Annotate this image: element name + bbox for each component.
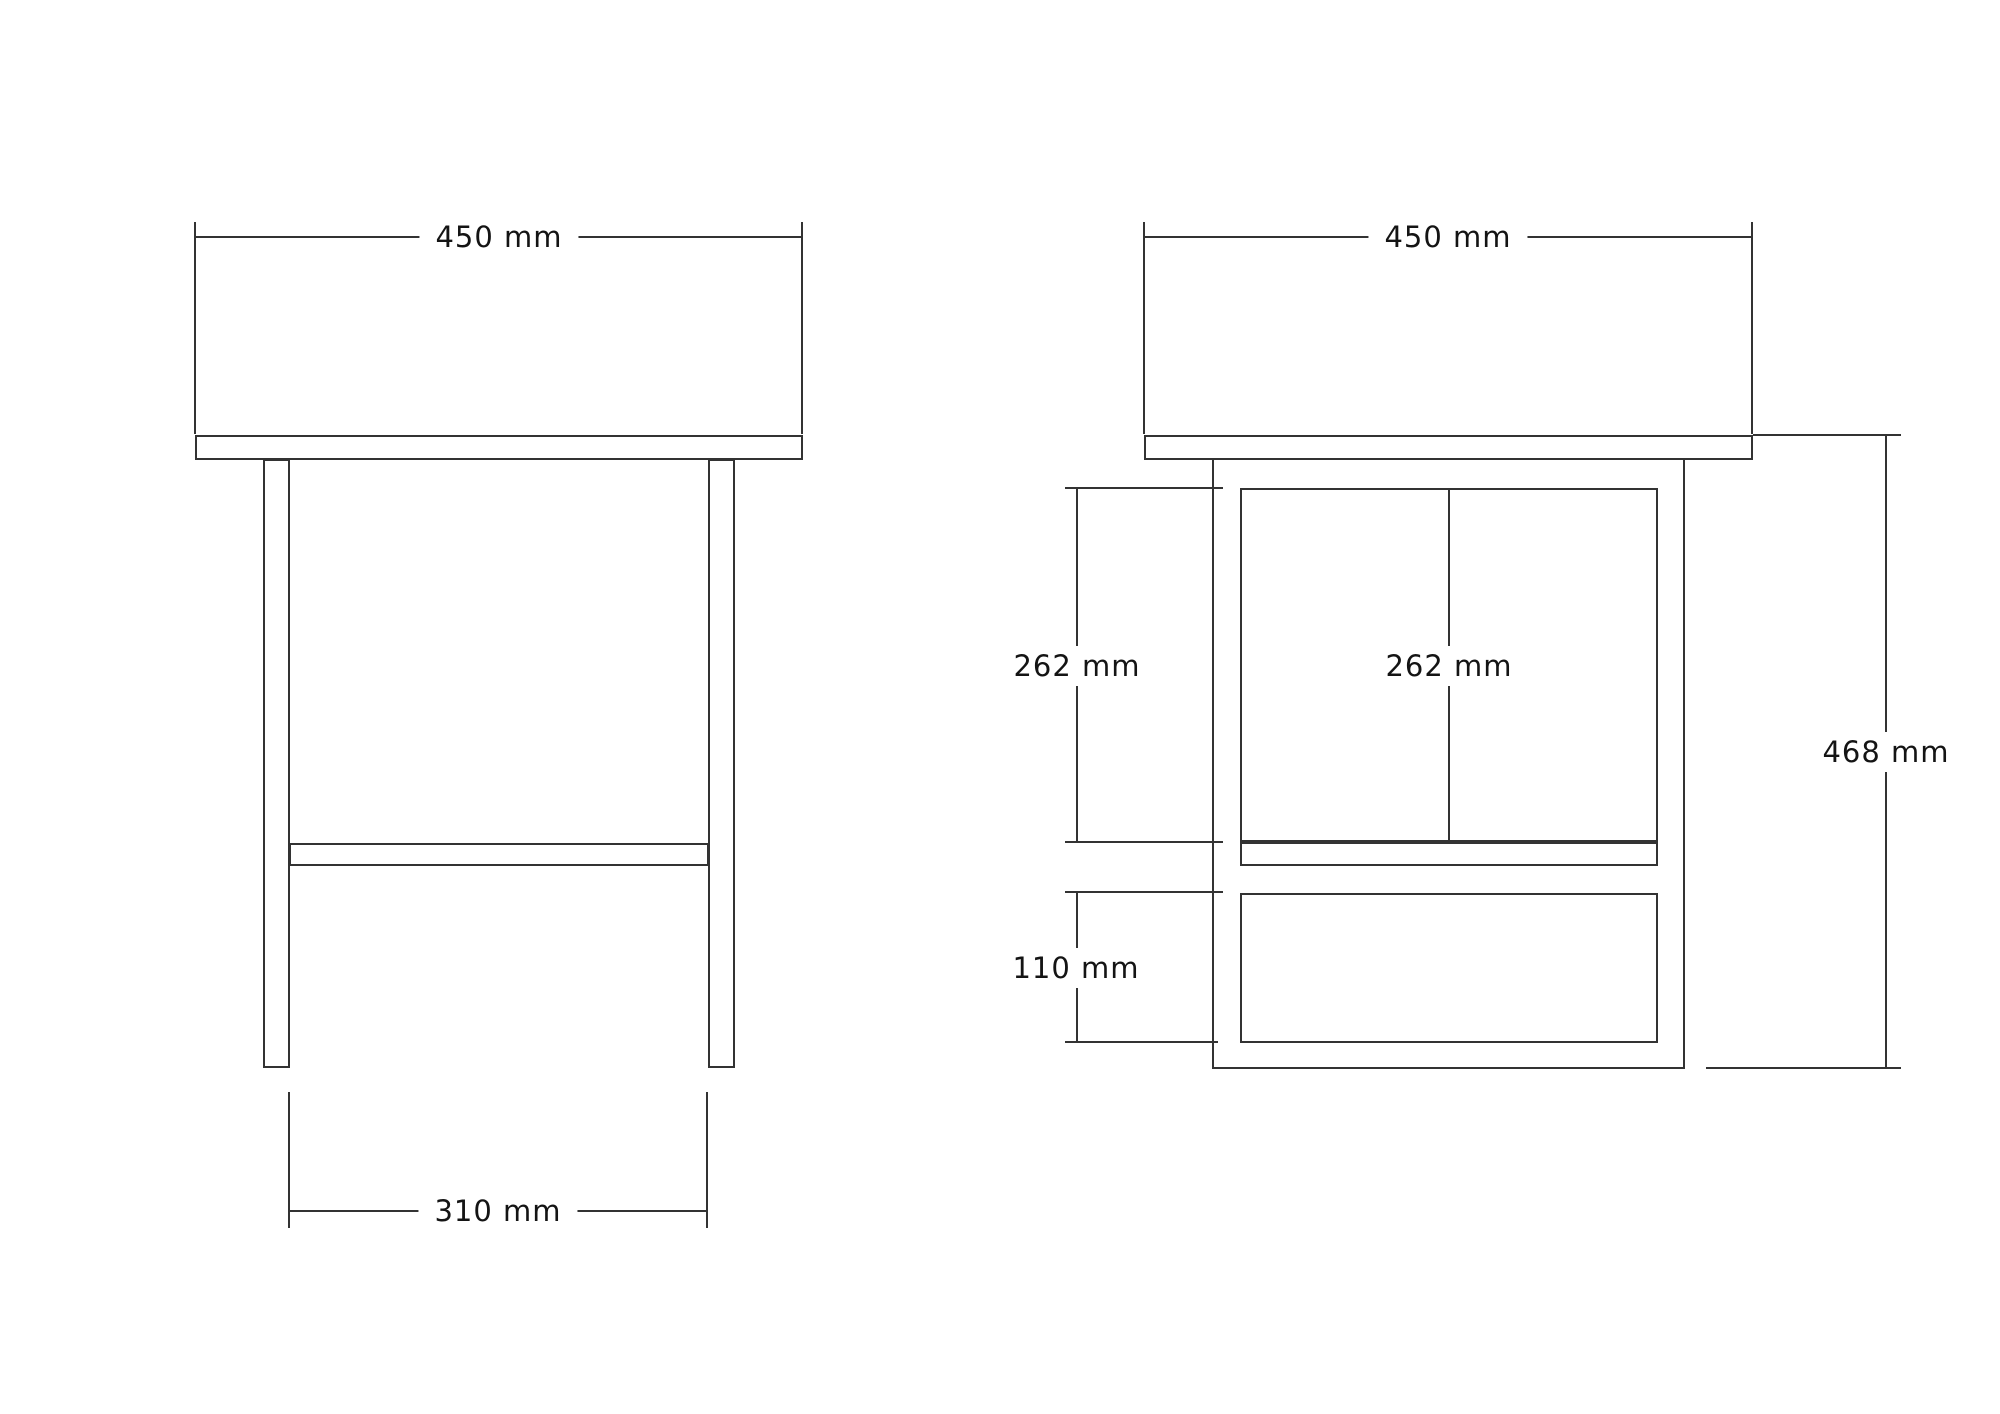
cabinet-left-wall [1212, 459, 1214, 1069]
side-span-label: 310 mm [418, 1191, 577, 1231]
side-span-extension-right [706, 1092, 708, 1228]
right-leg [708, 459, 735, 1068]
overall-height-extension-bottom [1706, 1067, 1901, 1069]
drawer-height-extension-bottom [1065, 1041, 1218, 1043]
side-width-extension-left [194, 222, 196, 434]
front-width-extension-left [1143, 222, 1145, 434]
side-width-label: 450 mm [419, 217, 578, 257]
tabletop-side [195, 435, 803, 460]
tabletop-front [1144, 435, 1753, 460]
stretcher [289, 843, 709, 866]
drawer-panel [1240, 893, 1658, 1043]
door-height-label: 262 mm [997, 646, 1156, 686]
door-center-label: 262 mm [1369, 646, 1528, 686]
cabinet-right-wall [1683, 459, 1685, 1069]
side-span-extension-left [288, 1092, 290, 1228]
front-width-extension-right [1751, 222, 1753, 434]
cabinet-bottom [1212, 1067, 1685, 1069]
door-height-extension-bottom [1065, 841, 1223, 843]
front-width-label: 450 mm [1368, 217, 1527, 257]
overall-height-label: 468 mm [1806, 732, 1965, 772]
drawer-height-extension-top [1065, 891, 1223, 893]
technical-drawing: 450 mm 310 mm 450 mm 262 mm [0, 0, 2000, 1414]
side-width-extension-right [801, 222, 803, 434]
left-leg [263, 459, 290, 1068]
overall-height-extension-top [1753, 434, 1901, 436]
door-height-extension-top [1065, 487, 1223, 489]
drawer-height-label: 110 mm [996, 948, 1155, 988]
shelf-bar [1240, 842, 1658, 866]
